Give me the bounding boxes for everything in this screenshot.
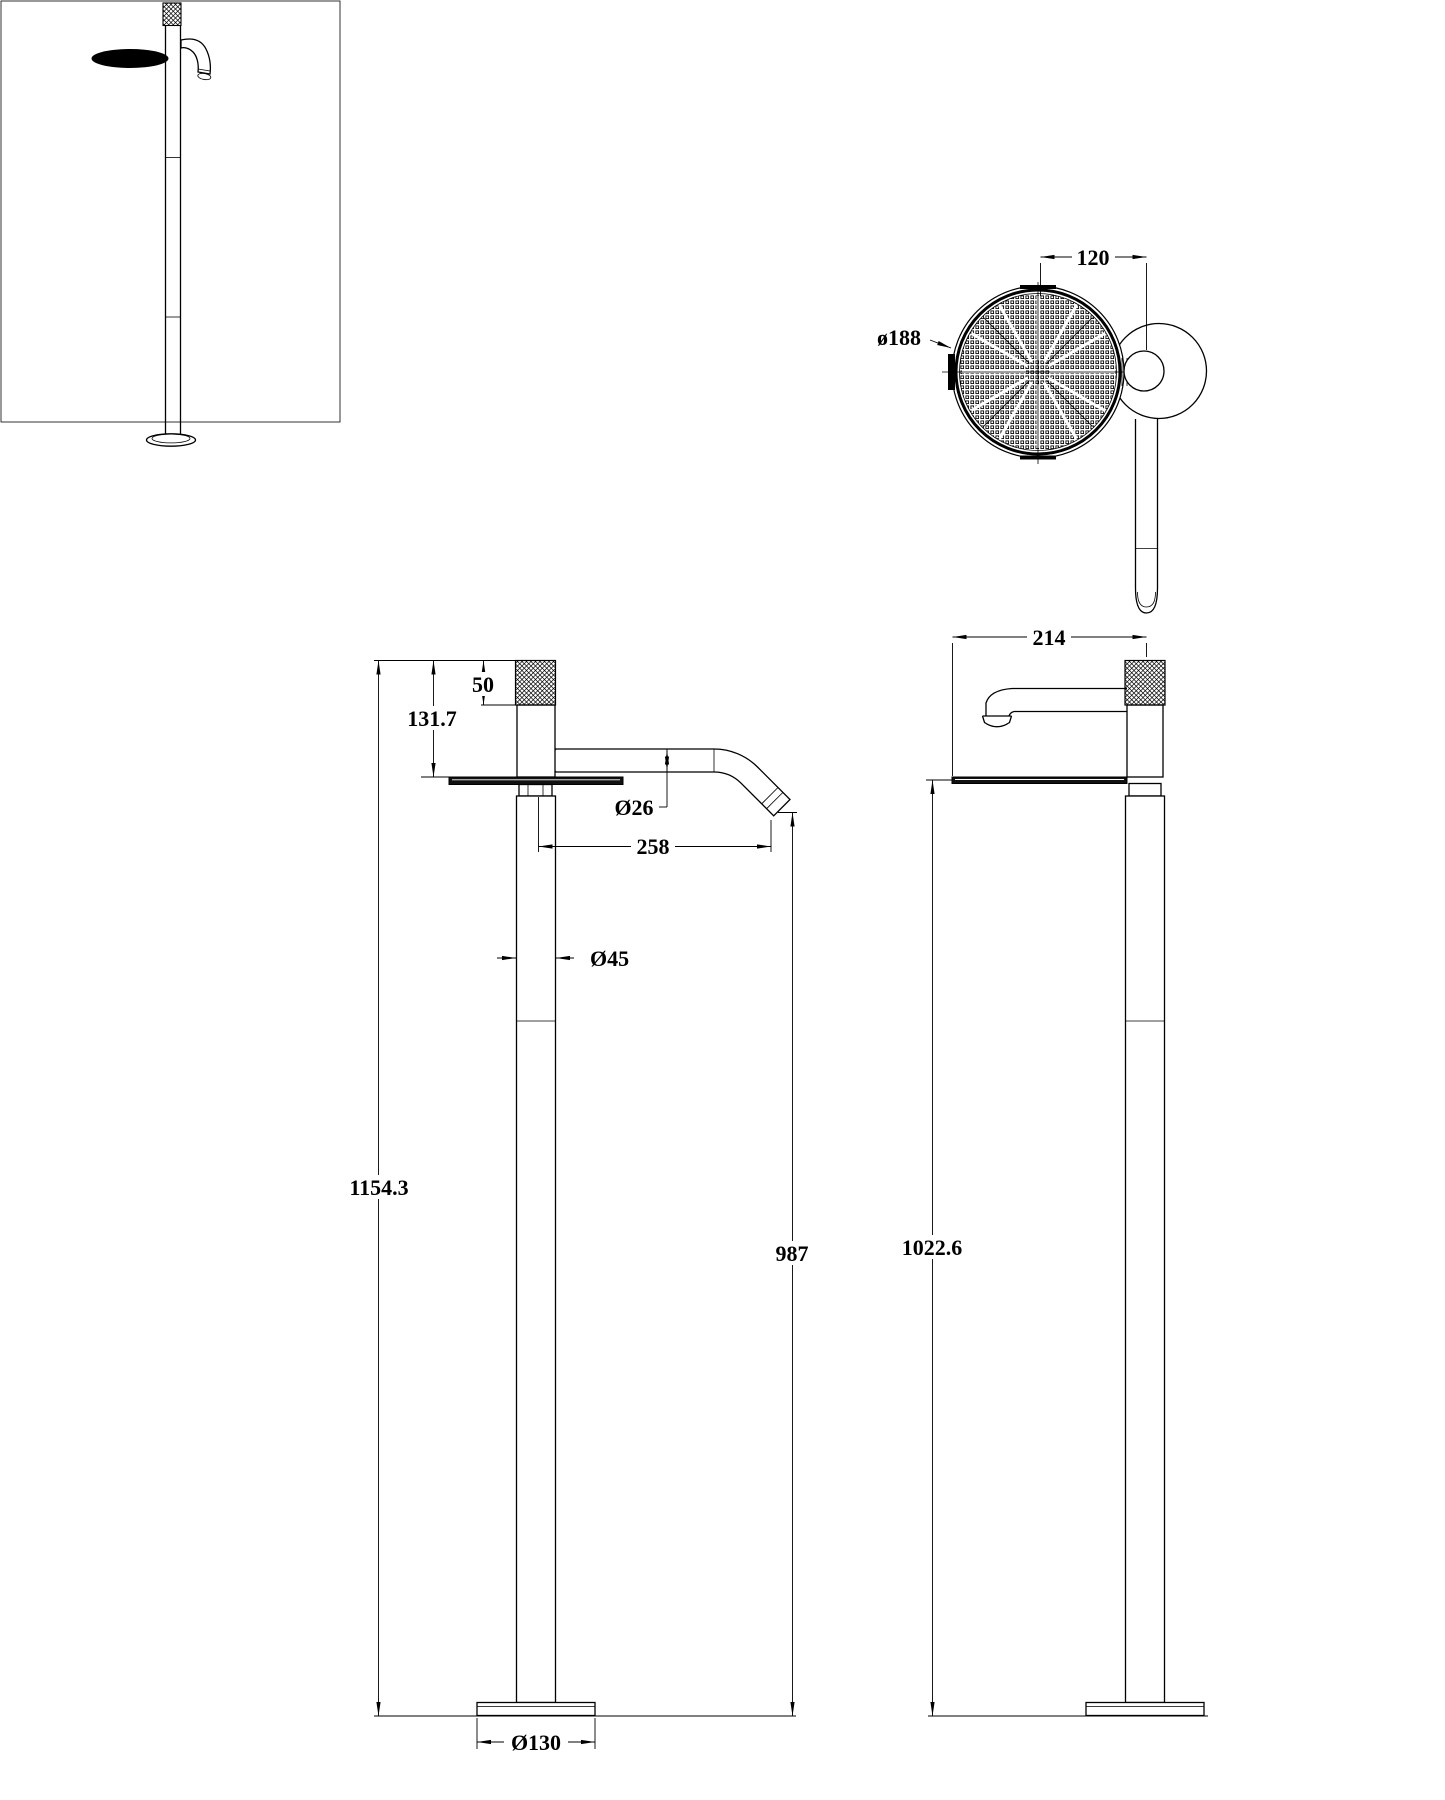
dim-shelf-height: 1022.6 — [897, 780, 968, 1716]
side-pole — [1126, 796, 1165, 1703]
dim-label-total-height: 1154.3 — [349, 1175, 408, 1200]
dim-spout-height: 987 — [773, 813, 812, 1717]
dim-cap-to-shelf: 131.7 — [403, 661, 462, 778]
side-view: 214 1022.6 — [897, 625, 1208, 1716]
front-handle-cap — [516, 661, 556, 706]
technical-drawing-page: 120 ø188 — [0, 0, 1445, 1800]
side-nozzle — [983, 689, 1128, 727]
dim-label-cap-height: 50 — [472, 672, 494, 697]
dim-disc-diameter: ø188 — [877, 325, 951, 350]
front-body — [517, 705, 555, 777]
side-shelf-edge — [952, 777, 1127, 784]
dim-label-shelf-height: 1022.6 — [902, 1235, 963, 1260]
dim-total-height: 1154.3 — [345, 661, 516, 1717]
top-pivot-circle — [1124, 351, 1164, 391]
iso-shelf-disc — [92, 49, 169, 68]
dim-label-cap-to-shelf: 131.7 — [407, 706, 457, 731]
iso-base — [147, 434, 196, 446]
iso-spout — [181, 39, 211, 81]
dim-label-pole-diameter: Ø45 — [590, 946, 629, 971]
dim-base-diameter: Ø130 — [477, 1718, 595, 1755]
top-view: 120 ø188 — [877, 245, 1207, 613]
side-base — [1086, 1703, 1204, 1716]
dim-cap-height: 50 — [469, 661, 516, 706]
top-handle-tube — [1136, 419, 1158, 613]
front-base — [477, 1703, 595, 1716]
dim-label-spout-reach: 258 — [637, 834, 670, 859]
dim-label-depth: 214 — [1033, 625, 1066, 650]
side-handle-cap — [1125, 661, 1165, 706]
dim-label-base-diameter: Ø130 — [511, 1730, 561, 1755]
side-mount-stub — [1129, 784, 1161, 797]
dim-depth: 214 — [953, 625, 1147, 776]
dim-spout-reach: 258 — [539, 797, 772, 859]
front-mount-stub — [519, 785, 552, 797]
iso-handle-cap — [163, 3, 181, 26]
front-view: 1154.3 131.7 50 Ø26 — [345, 661, 812, 1756]
side-body — [1127, 705, 1163, 777]
dim-label-disc-diameter: ø188 — [877, 325, 921, 350]
front-shelf-edge — [449, 777, 623, 785]
inset-frame — [1, 1, 340, 422]
front-pole — [517, 796, 556, 1703]
iso-pole — [166, 26, 181, 438]
dim-label-top-width: 120 — [1077, 245, 1110, 270]
dim-label-spout-height: 987 — [776, 1241, 809, 1266]
dim-label-spout-diameter: Ø26 — [614, 795, 653, 820]
isometric-view — [1, 1, 340, 446]
faucet-technical-drawing: 120 ø188 — [0, 0, 1445, 1800]
